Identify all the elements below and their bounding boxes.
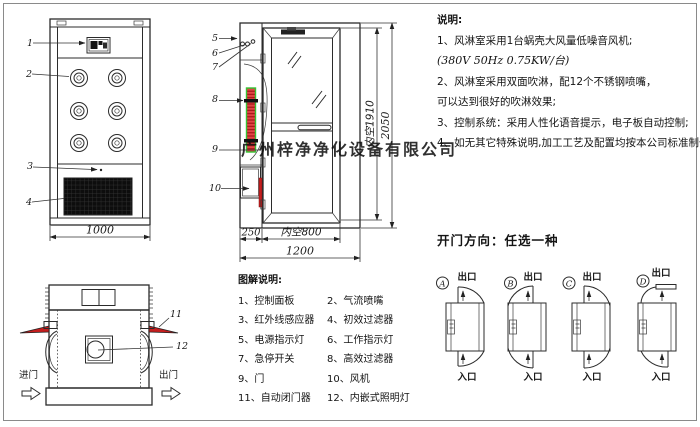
legend-item: 5、电源指示灯 bbox=[238, 331, 327, 351]
option-a-letter: A bbox=[438, 280, 445, 290]
fan-box bbox=[241, 167, 261, 198]
dim-250: 250 bbox=[240, 228, 261, 239]
option-d-entry: 入口 bbox=[650, 372, 670, 383]
note-line: (380V 50Hz 0.75KW/台) bbox=[437, 51, 695, 72]
note-line: 4、如无其它特殊说明,加工工艺及配置均按本公司标准制作。 bbox=[437, 133, 695, 154]
entry-door-label: 进门 bbox=[19, 369, 38, 381]
dim-1000: 1000 bbox=[86, 224, 114, 237]
part-label-11: 11 bbox=[170, 309, 182, 320]
door-option-b: B 出口 入口 bbox=[505, 271, 547, 383]
option-c-letter: C bbox=[566, 280, 573, 290]
infrared-sensor-dot bbox=[100, 169, 102, 171]
legend-item: 12、内嵌式照明灯 bbox=[327, 389, 428, 409]
note-line: 2、风淋室采用双面吹淋，配12个不锈钢喷嘴， bbox=[437, 72, 695, 93]
legend-item: 3、红外线感应器 bbox=[238, 311, 327, 331]
right-door-swing bbox=[141, 331, 152, 373]
side-bottom-dimensions: 250 内空800 1200 bbox=[240, 224, 360, 262]
door-frame bbox=[261, 27, 340, 223]
option-d-exit: 出口 bbox=[651, 267, 670, 279]
notes-title: 说明: bbox=[437, 10, 695, 31]
door-directions-title: 开门方向：任选一种 bbox=[437, 230, 559, 249]
dim-inner-800: 内空800 bbox=[280, 227, 321, 239]
legend-item: 8、高效过滤器 bbox=[327, 350, 428, 370]
legend-item: 9、门 bbox=[238, 370, 327, 390]
legend-item: 6、工作指示灯 bbox=[327, 331, 428, 351]
option-a-entry: 入口 bbox=[456, 372, 476, 383]
option-b-letter: B bbox=[506, 280, 513, 290]
part-label-1: 1 bbox=[27, 38, 33, 49]
part-label-10: 10 bbox=[209, 183, 221, 194]
primary-filter-grille bbox=[64, 178, 132, 215]
part-label-8: 8 bbox=[212, 94, 218, 105]
glass-hatch-mid bbox=[312, 91, 326, 108]
part-label-5: 5 bbox=[212, 33, 218, 44]
exit-arrow-icon bbox=[162, 388, 180, 400]
front-view-drawing: 1 2 3 4 1000 bbox=[25, 19, 150, 241]
legend-item: 1、控制面板 bbox=[238, 292, 327, 312]
legend-item: 10、风机 bbox=[327, 370, 428, 390]
note-line: 1、风淋室采用1台蜗壳大风量低噪音风机; bbox=[437, 31, 695, 52]
note-line: 3、控制系统：采用人性化语音提示，电子板自动控制; bbox=[437, 113, 695, 134]
door-option-c: C 出口 入口 bbox=[563, 271, 610, 383]
legend-item: 4、初效过滤器 bbox=[327, 311, 428, 331]
entry-arrow-icon bbox=[22, 388, 40, 400]
part-label-3: 3 bbox=[27, 161, 33, 172]
legend-panel: 图解说明: 1、控制面板 2、气流喷嘴 3、红外线感应器 4、初效过滤器 5、电… bbox=[238, 271, 428, 409]
legend-title: 图解说明: bbox=[238, 271, 428, 291]
option-c-entry: 入口 bbox=[581, 372, 601, 383]
notes-panel: 说明: 1、风淋室采用1台蜗壳大风量低噪音风机; (380V 50Hz 0.75… bbox=[437, 10, 695, 154]
air-nozzles bbox=[71, 70, 126, 152]
legend-item: 2、气流喷嘴 bbox=[327, 292, 428, 312]
part-label-4: 4 bbox=[25, 197, 32, 208]
part-label-2: 2 bbox=[25, 69, 32, 80]
part-label-12: 12 bbox=[176, 341, 188, 352]
part-label-7: 7 bbox=[212, 62, 219, 73]
left-door-swing bbox=[46, 331, 57, 373]
front-width-dimension: 1000 bbox=[50, 224, 150, 242]
legend-item: 11、自动闭门器 bbox=[238, 389, 327, 409]
side-view-drawing: 5 6 7 8 9 10 2 bbox=[209, 23, 397, 262]
dim-2050: 2050 bbox=[379, 112, 392, 141]
part-label-9: 9 bbox=[212, 144, 218, 155]
top-view-drawing: 11 12 进门 出门 bbox=[19, 285, 188, 405]
part-label-6: 6 bbox=[212, 48, 218, 59]
control-panel-symbol bbox=[87, 38, 110, 54]
legend-item: 7、急停开关 bbox=[238, 350, 327, 370]
option-b-entry: 入口 bbox=[522, 372, 542, 383]
option-a-exit: 出口 bbox=[457, 271, 476, 283]
option-b-exit: 出口 bbox=[523, 271, 542, 283]
glass-hatch-top bbox=[288, 52, 301, 68]
exit-door-label: 出门 bbox=[159, 369, 178, 381]
door-handle bbox=[298, 125, 331, 130]
option-d-letter: D bbox=[639, 278, 647, 288]
note-line: 可以达到很好的吹淋效果; bbox=[437, 92, 695, 113]
drawing-sheet: 1 2 3 4 1000 bbox=[0, 0, 700, 427]
option-c-exit: 出口 bbox=[582, 271, 601, 283]
door-option-a: A 出口 入口 bbox=[437, 271, 485, 383]
side-right-dimensions: 内空1910 2050 bbox=[341, 23, 397, 228]
door-option-d: D 出口 入口 bbox=[637, 267, 676, 383]
auto-door-closers bbox=[20, 322, 178, 334]
dim-1200: 1200 bbox=[286, 245, 314, 258]
dim-inner-1910: 内空1910 bbox=[365, 100, 377, 148]
